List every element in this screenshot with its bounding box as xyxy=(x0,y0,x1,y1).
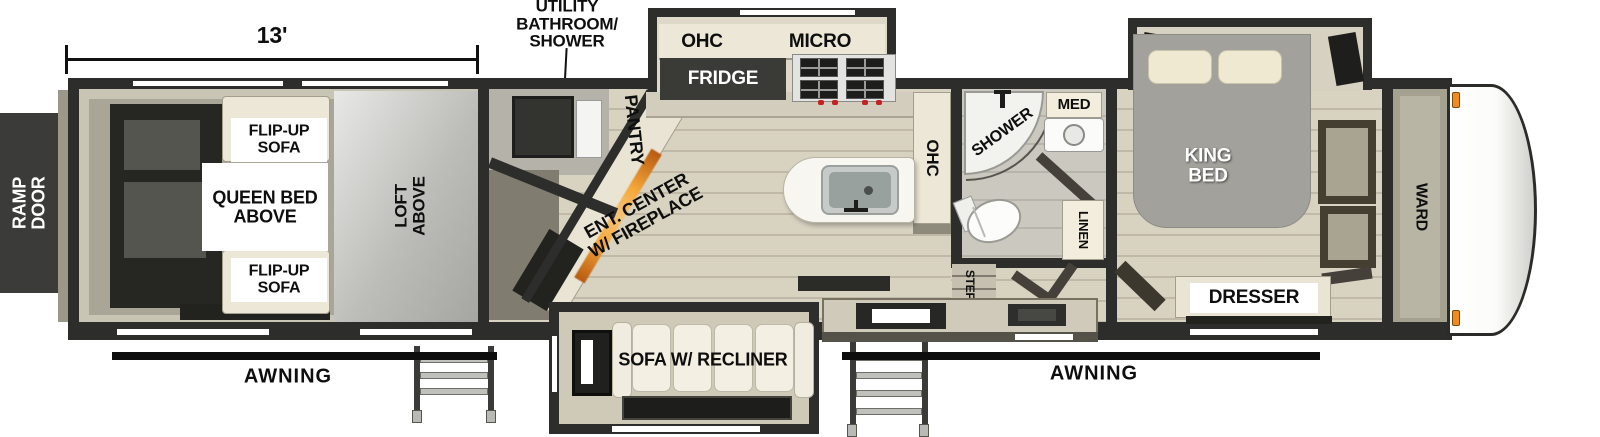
dimension-tick-left xyxy=(65,45,68,74)
dimension-line xyxy=(66,58,478,61)
entry-steps-rung xyxy=(856,390,922,397)
awning-rear-label: AWNING xyxy=(244,367,332,388)
ward-label: WARD xyxy=(1412,183,1429,231)
garage-steps-rung xyxy=(420,388,488,395)
flip-up-sofa-top-label: FLIP-UP SOFA xyxy=(249,123,310,156)
burner-icon xyxy=(800,58,838,77)
sofa-arm-right xyxy=(794,322,814,398)
window-loft-bottom xyxy=(360,329,472,335)
stove-knob xyxy=(818,100,824,105)
king-bed-label: KING BED xyxy=(1185,146,1232,186)
sink-drain xyxy=(864,186,873,195)
floorplan-canvas: 13' UTILITY BATHROOM/ SHOWER RAMP DOOR F… xyxy=(0,0,1600,437)
wall-bedroom-ward xyxy=(1382,78,1393,340)
sofa-rug xyxy=(622,396,792,420)
window-kitchen-slide xyxy=(740,10,855,15)
pillow-left xyxy=(1148,50,1212,84)
wall-kitchen-bath xyxy=(951,78,962,268)
burner-icon xyxy=(846,80,884,99)
garage-steps-rung xyxy=(420,372,488,379)
awning-bar-front xyxy=(842,352,1320,360)
garage-steps-foot xyxy=(412,410,422,423)
window-sofa-slide-bottom xyxy=(612,426,760,432)
utility-shower-pan xyxy=(576,100,602,158)
entry-hatch-2-inner xyxy=(1018,309,1056,321)
ohc-tall-cap xyxy=(913,224,951,234)
bedroom-closet-upper xyxy=(1318,120,1376,204)
queen-bed-above-label: QUEEN BED ABOVE xyxy=(212,188,317,225)
bedroom-closet-lower xyxy=(1320,206,1376,268)
utility-bathroom-callout: UTILITY BATHROOM/ SHOWER xyxy=(516,0,618,51)
entry-steps-rung xyxy=(856,372,922,379)
awning-front-label: AWNING xyxy=(1050,364,1138,385)
entry-hatch-inner xyxy=(872,309,930,323)
shower-head-icon-bar xyxy=(994,90,1011,94)
ohc-tall-label: OHC xyxy=(923,139,941,176)
wall-left xyxy=(68,78,79,340)
entry-mat xyxy=(798,276,890,291)
window-garage-top-2 xyxy=(302,81,448,86)
stove-knob xyxy=(876,100,882,105)
entry-steps-foot xyxy=(847,424,857,437)
kitchen-sink-basin xyxy=(829,172,891,208)
window-garage-top-1 xyxy=(133,81,283,86)
sink-faucet-stem xyxy=(854,200,858,212)
ramp-door-label: RAMP DOOR xyxy=(10,176,47,229)
entry-steps-foot xyxy=(919,424,929,437)
ohc-kitchen-label: OHC xyxy=(681,32,723,52)
window-garage-bottom xyxy=(117,329,269,335)
dimension-tick-right xyxy=(476,45,479,74)
loft-above-label: LOFT ABOVE xyxy=(392,176,427,235)
fridge-label: FRIDGE xyxy=(688,69,759,89)
burner-icon xyxy=(846,58,884,77)
dresser-label: DRESSER xyxy=(1209,288,1299,308)
ramp-panel-window-bottom xyxy=(124,182,206,258)
utility-fixture xyxy=(512,96,574,158)
garage-steps-foot xyxy=(486,410,496,423)
awning-bar-rear xyxy=(112,352,497,360)
dresser-rug xyxy=(1186,316,1332,324)
pillow-right xyxy=(1218,50,1282,84)
stove-knob xyxy=(862,100,868,105)
med-label: MED xyxy=(1058,97,1091,113)
burner-icon xyxy=(800,80,838,99)
ramp-panel-window-top xyxy=(124,120,200,170)
window-bedroom-bottom xyxy=(1190,329,1318,335)
window-sofa-slide-left xyxy=(552,336,557,392)
wall-garage-living xyxy=(478,78,489,340)
shower-head-icon xyxy=(1000,92,1005,108)
dimension-label: 13' xyxy=(257,24,287,48)
stove-knob xyxy=(832,100,838,105)
flip-up-sofa-bottom-label: FLIP-UP SOFA xyxy=(249,263,310,296)
micro-label: MICRO xyxy=(789,32,851,52)
marker-light-bottom xyxy=(1452,310,1460,326)
window-entry-platform xyxy=(1015,334,1073,340)
sofa-slide-window-pane xyxy=(581,340,593,384)
front-cap xyxy=(1447,84,1537,336)
sofa-label: SOFA W/ RECLINER xyxy=(618,351,787,370)
entry-steps-rung xyxy=(856,408,922,415)
vanity-bowl xyxy=(1063,124,1085,146)
wall-bath-bedroom xyxy=(1106,78,1117,340)
linen-label: LINEN xyxy=(1076,211,1090,249)
marker-light-top xyxy=(1452,92,1460,108)
